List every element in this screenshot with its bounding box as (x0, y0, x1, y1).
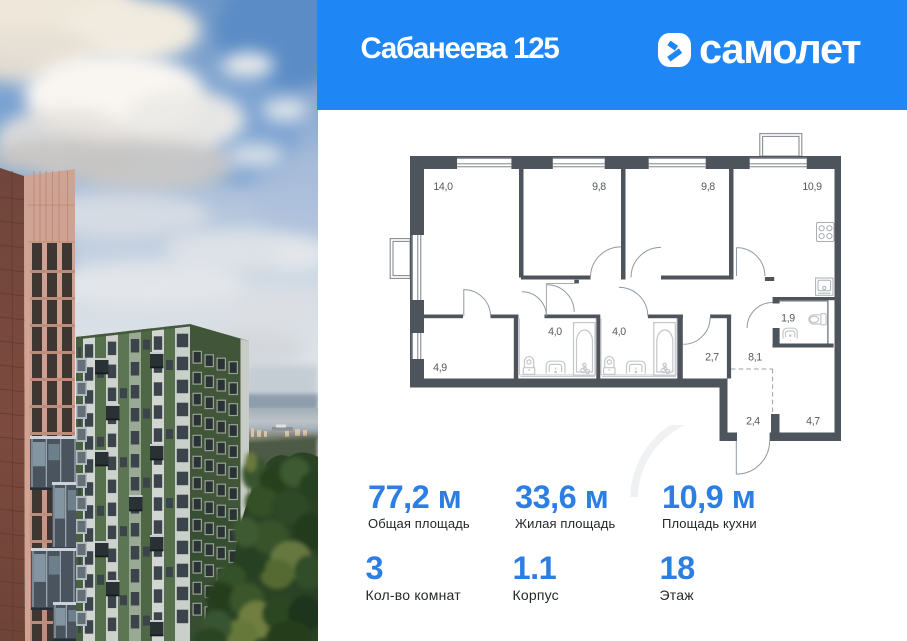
svg-text:2,7: 2,7 (705, 352, 719, 364)
svg-text:1,9: 1,9 (781, 313, 795, 325)
svg-text:8,1: 8,1 (748, 352, 762, 364)
svg-text:4,7: 4,7 (806, 416, 820, 428)
svg-text:4,0: 4,0 (548, 326, 562, 338)
svg-text:9,8: 9,8 (592, 181, 606, 193)
svg-text:9,8: 9,8 (701, 181, 715, 193)
svg-text:10,9: 10,9 (802, 181, 822, 193)
svg-text:14,0: 14,0 (433, 181, 453, 193)
svg-text:4,9: 4,9 (433, 362, 447, 374)
svg-text:2,4: 2,4 (746, 416, 760, 428)
svg-text:4,0: 4,0 (612, 326, 626, 338)
